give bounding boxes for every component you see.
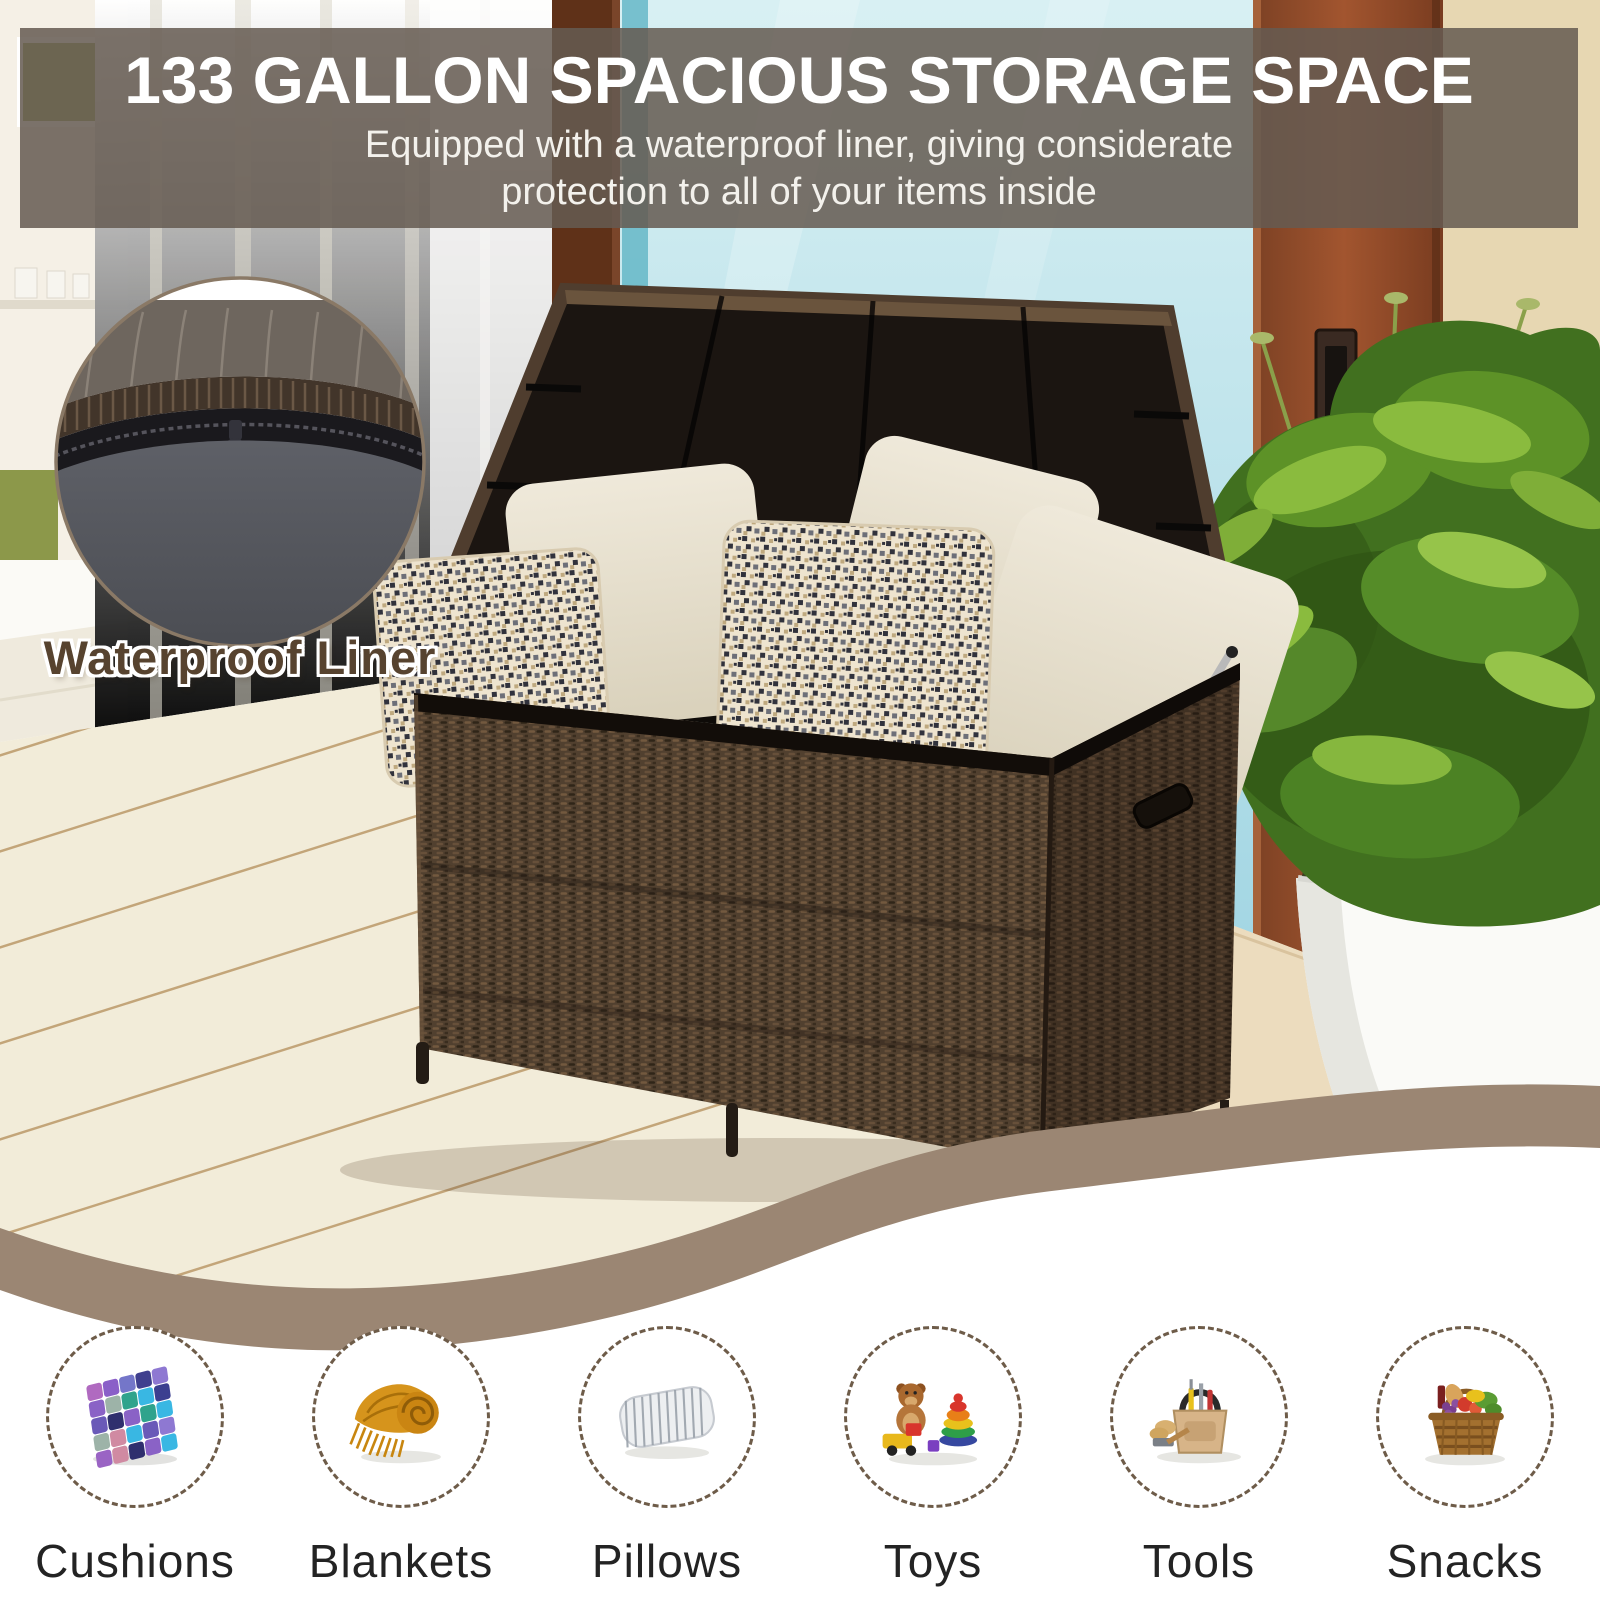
snacks-icon bbox=[1402, 1354, 1528, 1480]
item-blankets: Blankets bbox=[268, 1326, 534, 1588]
item-tools: Tools bbox=[1066, 1326, 1332, 1588]
item-label: Blankets bbox=[309, 1534, 493, 1588]
zipper-pull bbox=[229, 420, 242, 440]
subtitle-line-2: protection to all of your items inside bbox=[501, 171, 1097, 213]
page-subtitle: Equipped with a waterproof liner, giving… bbox=[20, 122, 1578, 216]
item-cushions: Cushions bbox=[2, 1326, 268, 1588]
cushion-icon bbox=[72, 1354, 198, 1480]
item-label: Cushions bbox=[35, 1534, 235, 1588]
pillow-icon bbox=[604, 1354, 730, 1480]
toys-icon bbox=[870, 1354, 996, 1480]
tools-icon bbox=[1136, 1354, 1262, 1480]
blanket-icon bbox=[338, 1354, 464, 1480]
item-label: Tools bbox=[1143, 1534, 1255, 1588]
item-label: Toys bbox=[884, 1534, 983, 1588]
wall-art bbox=[0, 470, 58, 562]
storage-items-row: Cushions Blankets bbox=[0, 1326, 1600, 1588]
blankets-circle bbox=[312, 1326, 490, 1508]
tools-circle bbox=[1110, 1326, 1288, 1508]
item-snacks: Snacks bbox=[1332, 1326, 1598, 1588]
item-label: Pillows bbox=[592, 1534, 742, 1588]
subtitle-line-1: Equipped with a waterproof liner, giving… bbox=[365, 124, 1233, 166]
cushions-circle bbox=[46, 1326, 224, 1508]
page-title: 133 GALLON SPACIOUS STORAGE SPACE bbox=[20, 42, 1578, 118]
product-infographic: 133 GALLON SPACIOUS STORAGE SPACE Equipp… bbox=[0, 0, 1600, 1600]
snacks-circle bbox=[1376, 1326, 1554, 1508]
waterproof-liner-label: Waterproof Liner bbox=[40, 630, 440, 685]
toys-circle bbox=[844, 1326, 1022, 1508]
liner-callout-circle bbox=[54, 276, 426, 650]
item-pillows: Pillows bbox=[534, 1326, 800, 1588]
item-label: Snacks bbox=[1387, 1534, 1544, 1588]
item-toys: Toys bbox=[800, 1326, 1066, 1588]
pillows-circle bbox=[578, 1326, 756, 1508]
